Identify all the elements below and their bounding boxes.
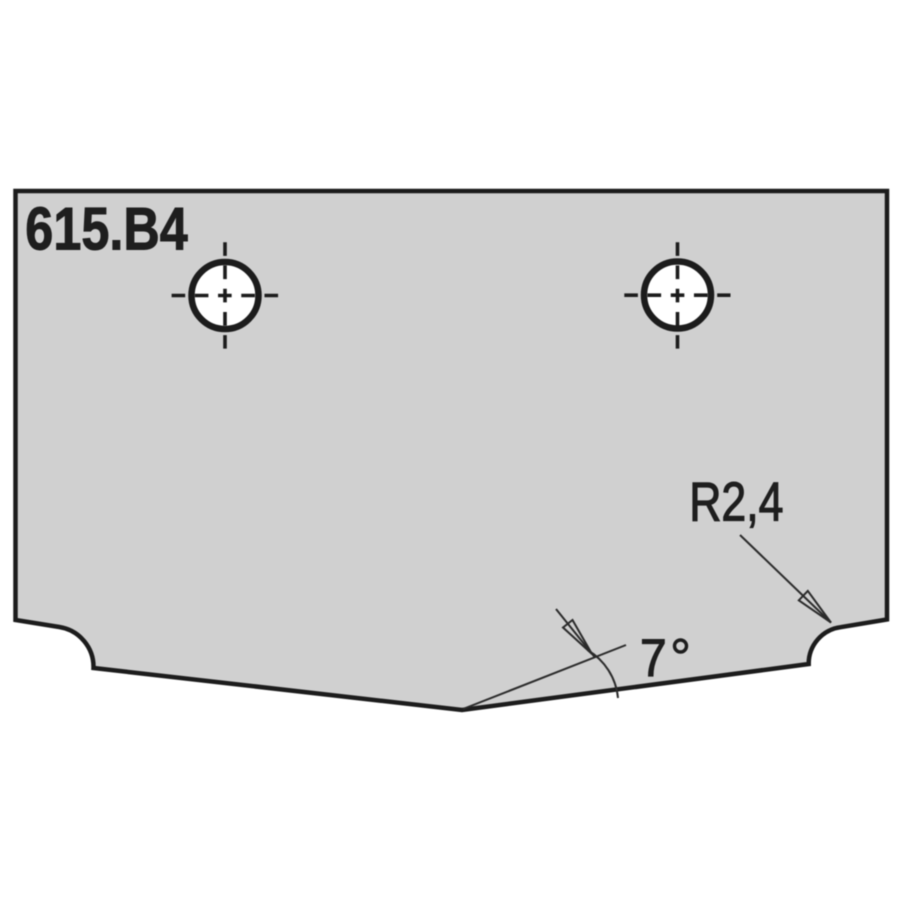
svg-text:7: 7 (640, 628, 667, 688)
svg-text:R2,4: R2,4 (689, 471, 783, 532)
svg-text:615.B4: 615.B4 (25, 195, 187, 262)
